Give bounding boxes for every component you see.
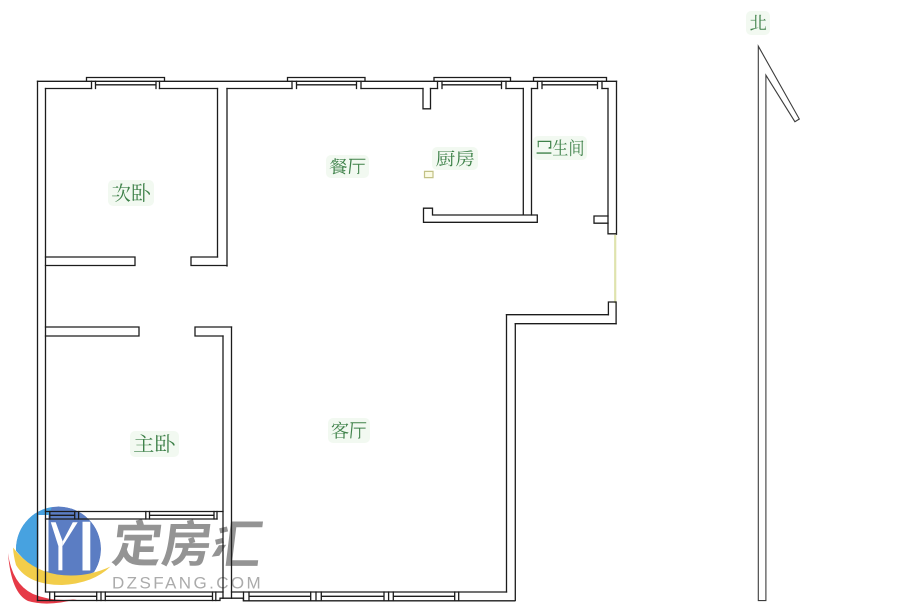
svg-text:DZSFANG.COM: DZSFANG.COM	[112, 574, 263, 593]
